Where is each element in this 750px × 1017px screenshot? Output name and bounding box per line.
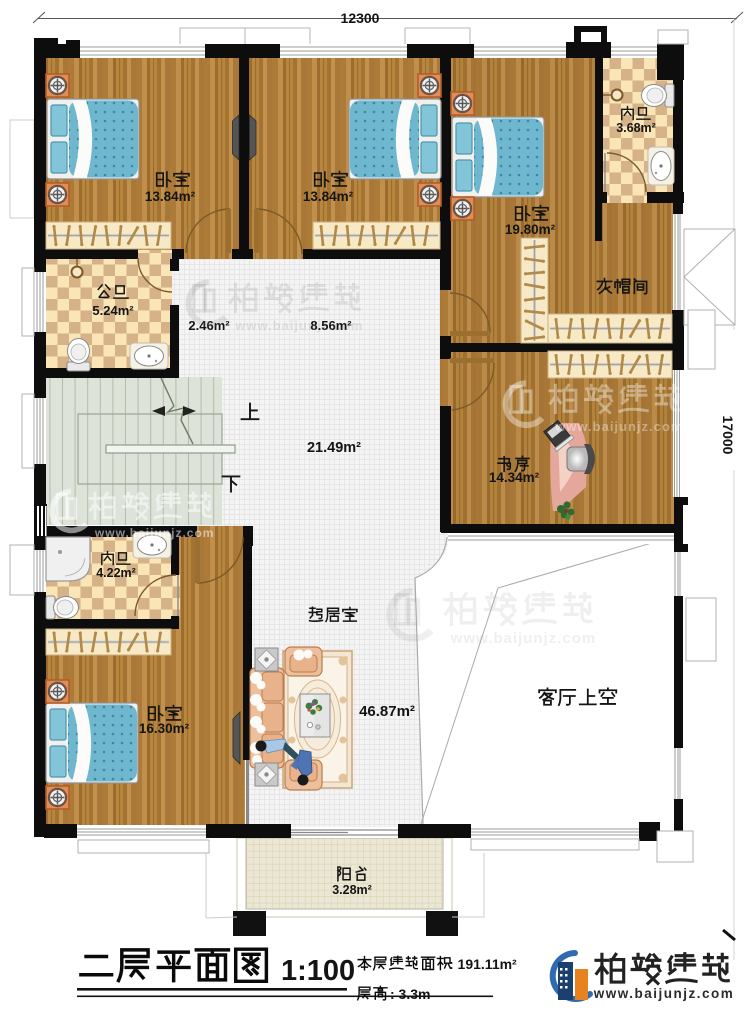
svg-text:: 3.3m: : 3.3m (390, 986, 430, 1002)
svg-text:14.34m²: 14.34m² (489, 470, 540, 485)
svg-text:19.80m²: 19.80m² (505, 222, 556, 237)
svg-text:4.22m²: 4.22m² (96, 566, 136, 580)
svg-text:5.24m²: 5.24m² (92, 303, 134, 318)
svg-text:17000: 17000 (720, 416, 736, 455)
svg-text:16.30m²: 16.30m² (139, 721, 190, 736)
svg-text:13.84m²: 13.84m² (303, 189, 354, 204)
svg-text:www.baijunjz.com: www.baijunjz.com (593, 986, 735, 1001)
svg-text:3.28m²: 3.28m² (332, 883, 372, 897)
svg-text:1:100: 1:100 (281, 955, 355, 987)
svg-text:12300: 12300 (341, 10, 380, 26)
svg-text:3.68m²: 3.68m² (616, 121, 656, 135)
svg-text:: 191.11m²: : 191.11m² (449, 956, 517, 972)
svg-text:www.baijunjz.com: www.baijunjz.com (450, 630, 596, 647)
svg-text:www.baijunjz.com: www.baijunjz.com (234, 318, 363, 333)
svg-text:www.baijunjz.com: www.baijunjz.com (554, 419, 683, 434)
svg-text:21.49m²: 21.49m² (307, 440, 361, 456)
svg-text:www.baijunjz.com: www.baijunjz.com (94, 526, 215, 540)
svg-text:13.84m²: 13.84m² (145, 189, 196, 204)
svg-text:46.87m²: 46.87m² (359, 703, 415, 720)
